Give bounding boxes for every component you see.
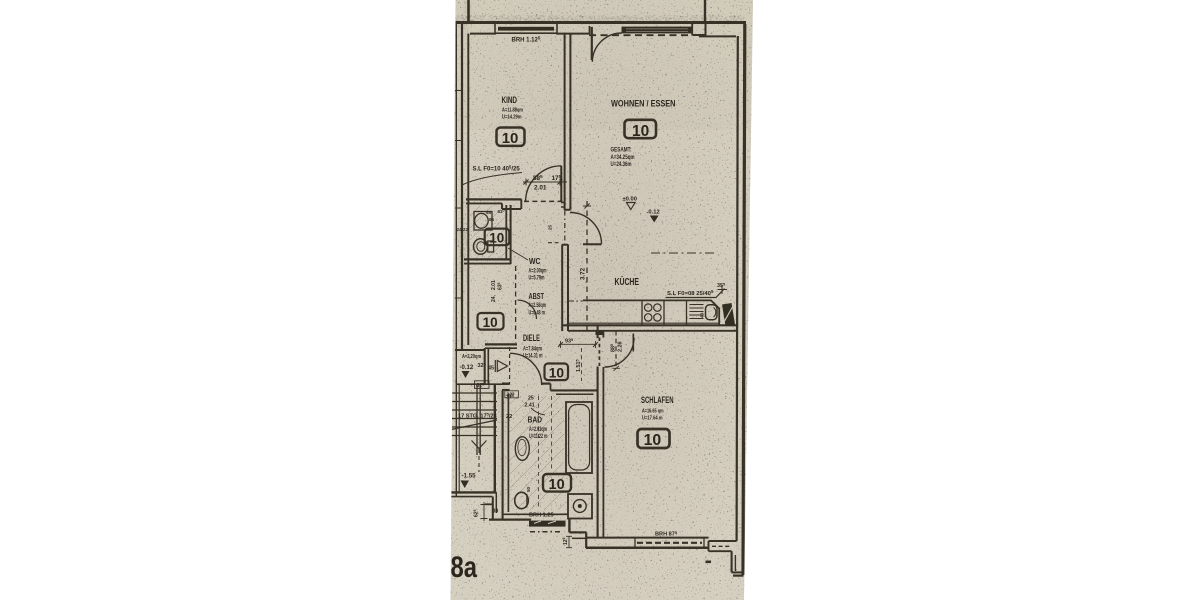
svg-text:WC: WC [529,256,541,266]
svg-text:40: 40 [700,312,706,318]
svg-text:10: 10 [644,432,662,449]
svg-text:-0.12: -0.12 [647,210,660,216]
svg-text:45: 45 [486,210,492,215]
svg-text:2.26: 2.26 [618,342,624,353]
svg-text:DIELE: DIELE [523,333,540,343]
svg-text:SCHLAFEN: SCHLAFEN [641,395,674,405]
svg-text:A=11.88qm: A=11.88qm [502,108,523,114]
svg-text:S.L F0=08 25/405: S.L F0=08 25/405 [667,289,714,297]
svg-text:KÜCHE: KÜCHE [615,275,640,288]
svg-text:A=2.00qm: A=2.00qm [529,269,547,275]
svg-text:95: 95 [489,217,495,222]
svg-text:A=2.20qm: A=2.20qm [462,354,481,360]
svg-text:GESAMT:: GESAMT: [611,147,632,154]
svg-text:U=5.79m: U=5.79m [529,276,545,282]
svg-text:25: 25 [548,224,553,230]
svg-text:S.L F0=10 405/25: S.L F0=10 405/25 [473,165,521,173]
svg-text:10: 10 [632,123,649,140]
svg-text:A=34.25qm: A=34.25qm [611,154,635,161]
svg-text:25: 25 [528,396,534,402]
svg-text:10: 10 [549,477,565,493]
svg-text:BRH 1.25: BRH 1.25 [529,513,554,519]
svg-text:2.01: 2.01 [534,185,547,192]
svg-text:24,22: 24,22 [457,227,469,232]
svg-text:2.41: 2.41 [525,403,535,409]
svg-text:U=24.36m: U=24.36m [611,161,632,168]
svg-text:17 STG. 175/28: 17 STG. 175/28 [458,412,497,420]
svg-text:8a: 8a [451,551,478,584]
svg-text:30: 30 [493,509,499,515]
svg-text:10: 10 [483,315,498,330]
svg-text:WOHNEN / ESSEN: WOHNEN / ESSEN [611,99,676,110]
svg-text:10: 10 [549,366,565,381]
svg-text:U=14.31 m: U=14.31 m [523,354,543,360]
svg-text:50: 50 [526,486,531,492]
svg-text:U=6.48 m: U=6.48 m [529,311,546,317]
svg-text:BRH 1.125: BRH 1.125 [512,36,541,44]
svg-text:KIND: KIND [502,95,518,105]
svg-text:U=14.29m: U=14.29m [502,115,522,121]
svg-text:A=16.65 qm: A=16.65 qm [642,409,664,415]
svg-text:10: 10 [502,130,519,147]
svg-text:3.72: 3.72 [580,267,587,280]
svg-text:-0.12: -0.12 [460,365,474,371]
svg-text:ABST: ABST [529,291,545,301]
svg-text:A=7.84qm: A=7.84qm [523,347,542,353]
svg-text:24,: 24, [491,294,497,302]
svg-text:45: 45 [488,366,494,372]
svg-text:10: 10 [489,231,504,246]
svg-text:U=17.64 m: U=17.64 m [642,416,663,422]
svg-text:BRH 875: BRH 875 [655,530,678,538]
svg-text:±0.00: ±0.00 [623,197,637,203]
svg-text:A=2.58qm: A=2.58qm [529,303,547,309]
svg-text:-1.55: -1.55 [462,473,477,480]
